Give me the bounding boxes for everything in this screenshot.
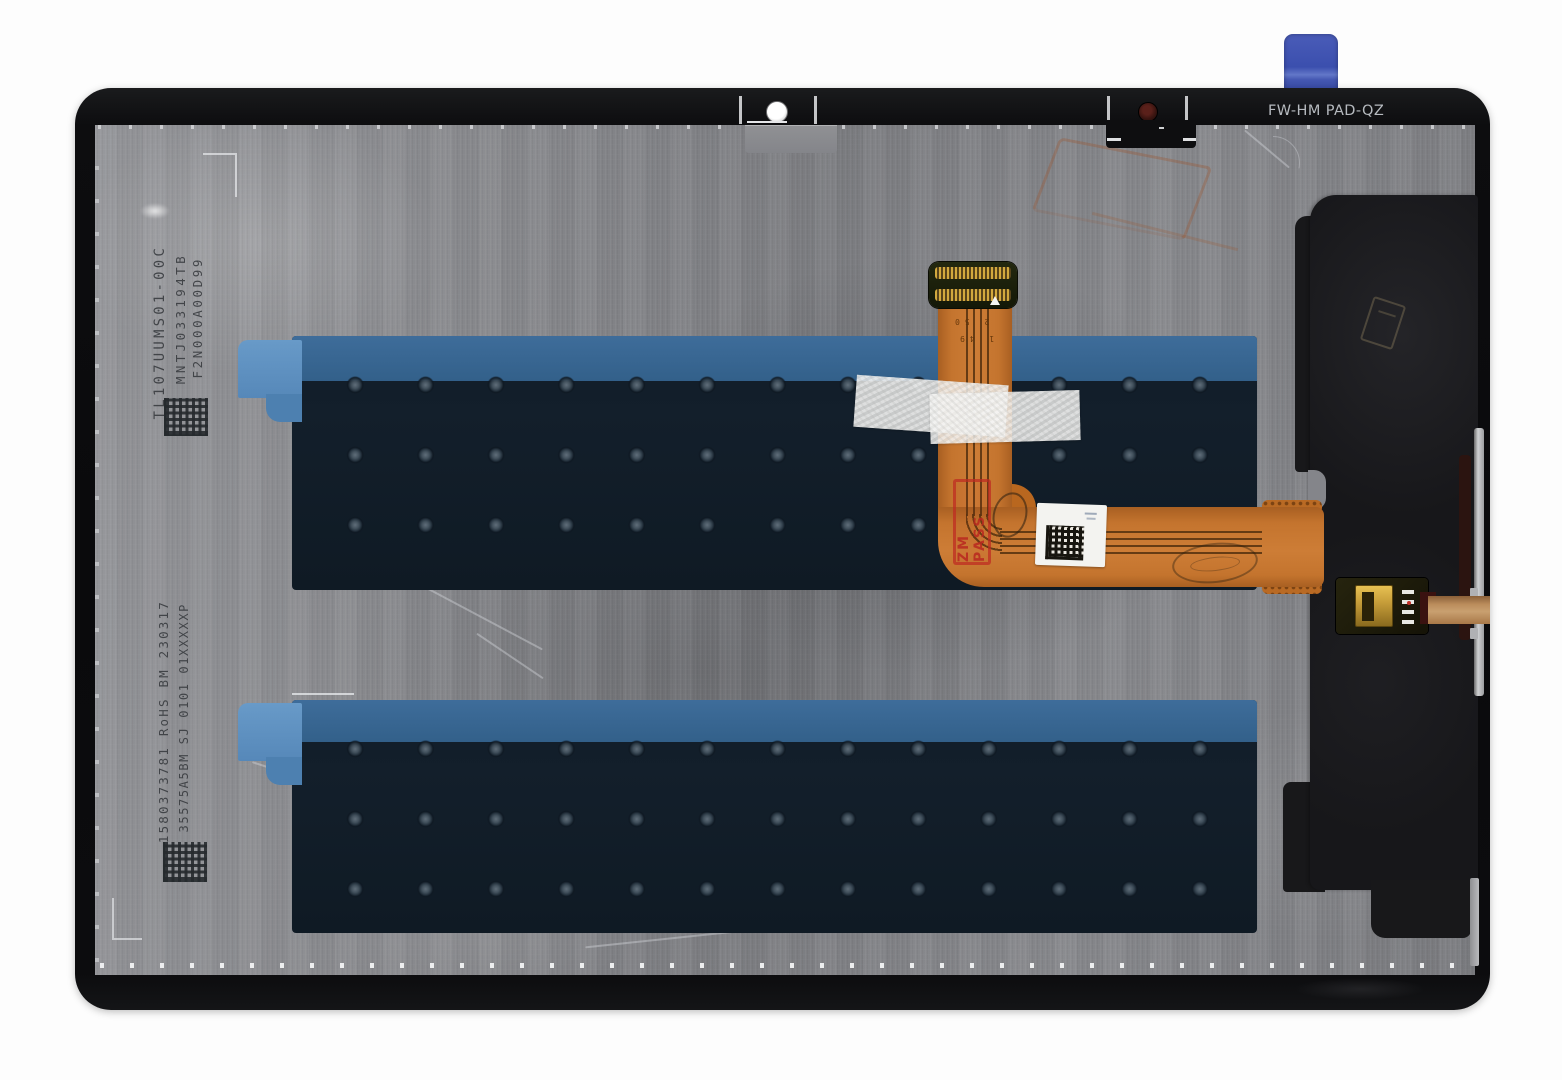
black-panel-main xyxy=(1310,195,1478,890)
flex-pin-label-bottom: 1 49 xyxy=(955,334,994,343)
adhesive-dot-grid-lower xyxy=(320,714,1232,926)
etched-corner-mark-top xyxy=(203,153,237,197)
blue-tape-tab-lower xyxy=(238,703,302,761)
bezel-reflection-smudge xyxy=(1295,978,1425,1000)
bezel-alignment-tick xyxy=(739,96,742,124)
blue-pull-tab xyxy=(1284,34,1338,94)
datamatrix-code-top xyxy=(164,398,208,436)
flex-board-connector xyxy=(929,262,1017,308)
sticker-print-mark xyxy=(1085,512,1097,514)
qc-pass-stamp: ZM PASS xyxy=(953,479,991,565)
camera-lens-dark xyxy=(1138,102,1158,122)
blue-tape-tab-upper xyxy=(238,340,302,398)
white-smudge xyxy=(140,203,170,219)
metal-sliver-bottom-right xyxy=(1470,878,1479,966)
bezel-model-text: FW-HM PAD-QZ xyxy=(1268,103,1398,119)
connector-white-marks xyxy=(1402,590,1414,624)
sticker-print-mark xyxy=(1087,518,1096,520)
etched-corner-mark-bottom xyxy=(112,898,142,940)
blue-tape-tab-upper-ext xyxy=(266,394,302,422)
serial-label-line3: F2N000A00D99 xyxy=(190,257,205,379)
black-tab-corner-mark xyxy=(1183,138,1196,141)
metal-tab-center xyxy=(745,125,837,153)
flex-triangle-mark xyxy=(990,296,1000,305)
photo-stage: TL107UUMS01-00C MNTJ033194TB F2N000A00D9… xyxy=(0,0,1562,1080)
metal-edge-serration-left xyxy=(95,140,99,962)
serial-label-line1: TL107UUMS01-00C xyxy=(152,245,168,419)
black-panel-bottom-step xyxy=(1371,880,1471,938)
black-tab-dot xyxy=(1159,127,1164,129)
connector-red-dot xyxy=(1407,601,1411,605)
black-tab-corner-mark xyxy=(1107,138,1121,141)
bezel-alignment-tick xyxy=(814,96,817,124)
lcd-edge-silver-strip xyxy=(1474,428,1484,696)
touch-flex-ribbon xyxy=(1428,596,1490,624)
white-tape-piece-right xyxy=(929,390,1080,444)
etched-line-above-pad xyxy=(292,693,354,695)
metal-edge-serration-bottom xyxy=(100,963,1470,968)
flex-pin-label-top: 2 50 xyxy=(950,317,989,326)
qr-sticker xyxy=(1035,503,1107,567)
gold-connector xyxy=(1355,585,1393,627)
serial-label-line2: MNTJ033194TB xyxy=(173,253,188,384)
blue-tape-tab-lower-ext xyxy=(266,757,302,785)
metal-tab-center-mark xyxy=(747,121,787,123)
rohs-label-line2: 35575A5BM SJ 0101 01XXXXXP xyxy=(177,603,191,832)
rohs-label-line1: 1580373781 RoHS BM 230317 xyxy=(156,600,171,843)
camera-hole-white xyxy=(766,101,788,123)
qr-code xyxy=(1045,525,1084,560)
datamatrix-code-bottom xyxy=(163,842,207,882)
black-tab-right xyxy=(1106,120,1196,148)
edge-clip xyxy=(1470,628,1478,639)
connector-pin-row xyxy=(935,267,1011,279)
